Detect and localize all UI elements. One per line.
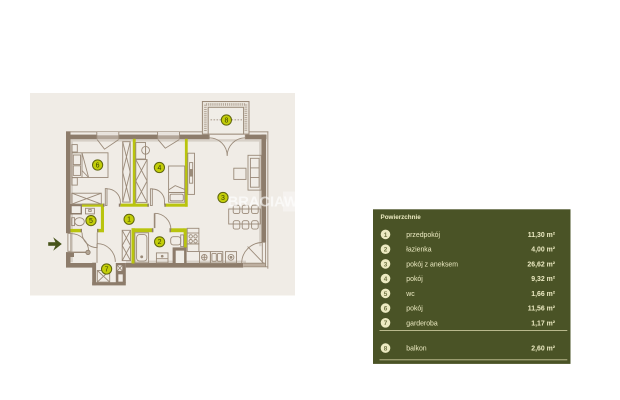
svg-text:5: 5 xyxy=(89,218,93,225)
svg-text:8: 8 xyxy=(384,346,388,353)
svg-text:2,60 m²: 2,60 m² xyxy=(531,346,555,353)
svg-text:7: 7 xyxy=(384,320,388,327)
svg-text:4: 4 xyxy=(157,165,161,172)
svg-text:łazienka: łazienka xyxy=(406,247,431,254)
svg-text:26,62 m²: 26,62 m² xyxy=(527,261,555,268)
svg-text:11,56 m²: 11,56 m² xyxy=(528,306,556,313)
svg-text:6: 6 xyxy=(384,306,388,313)
svg-text:pokój: pokój xyxy=(406,276,423,283)
svg-text:11,30 m²: 11,30 m² xyxy=(528,232,556,239)
svg-text:7: 7 xyxy=(105,266,109,273)
svg-text:1: 1 xyxy=(384,232,388,239)
svg-text:garderoba: garderoba xyxy=(406,320,438,327)
svg-text:4: 4 xyxy=(384,276,388,283)
svg-text:2: 2 xyxy=(158,239,162,246)
svg-text:4,00 m²: 4,00 m² xyxy=(531,247,555,254)
svg-text:Powierzchnie: Powierzchnie xyxy=(381,214,422,221)
svg-text:balkon: balkon xyxy=(406,346,426,353)
svg-text:3: 3 xyxy=(221,195,225,202)
svg-text:1: 1 xyxy=(127,217,131,224)
svg-text:wc: wc xyxy=(405,291,415,298)
svg-text:5: 5 xyxy=(384,291,388,298)
svg-text:2: 2 xyxy=(384,247,388,254)
svg-text:3: 3 xyxy=(384,261,388,268)
svg-text:przedpokój: przedpokój xyxy=(406,232,440,239)
svg-text:6: 6 xyxy=(96,162,100,169)
svg-text:8: 8 xyxy=(224,117,228,124)
svg-text:1,17 m²: 1,17 m² xyxy=(531,320,555,327)
svg-text:9,32 m²: 9,32 m² xyxy=(531,276,555,283)
svg-text:1,66 m²: 1,66 m² xyxy=(531,291,555,298)
svg-text:pokój z aneksem: pokój z aneksem xyxy=(406,261,458,268)
svg-text:pokój: pokój xyxy=(406,306,423,313)
